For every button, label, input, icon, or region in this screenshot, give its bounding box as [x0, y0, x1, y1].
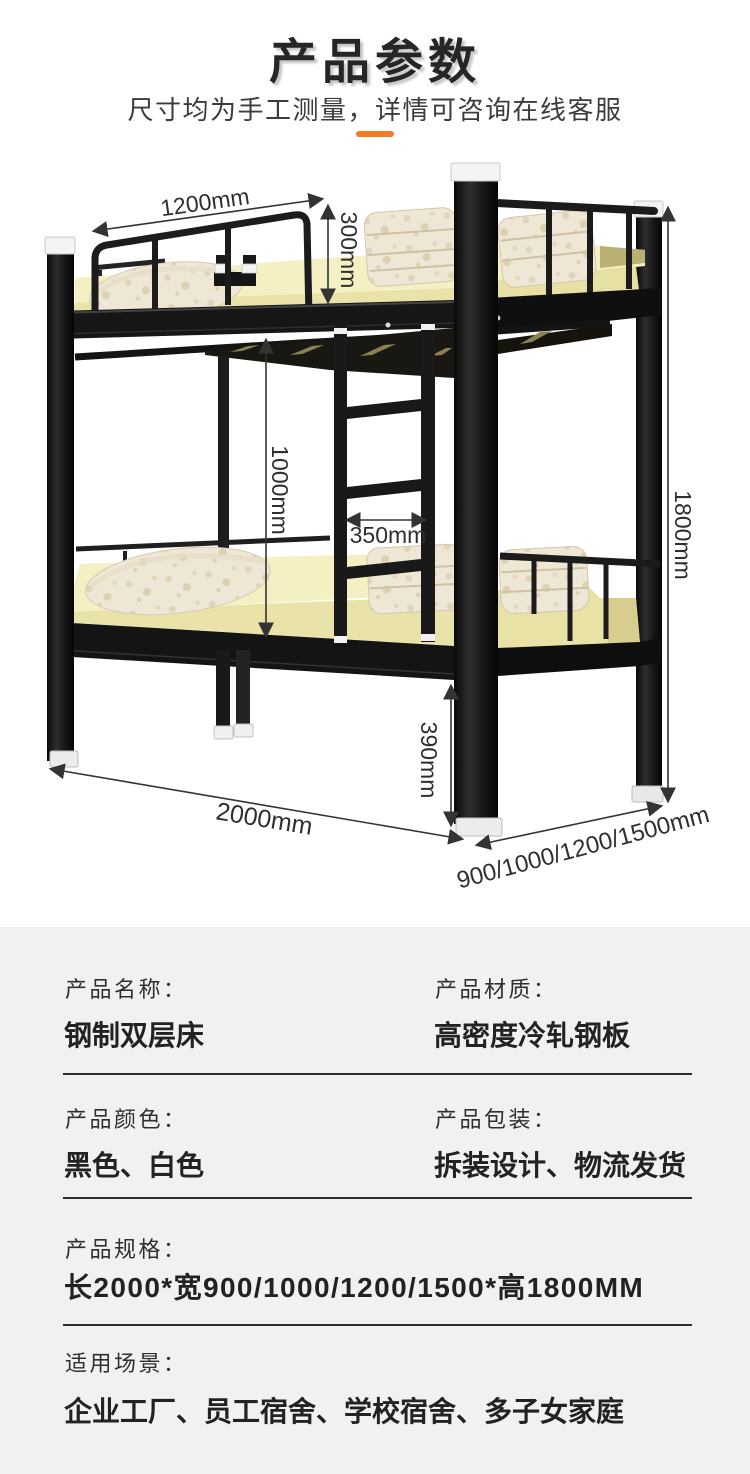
svg-text:2000mm: 2000mm: [214, 797, 315, 840]
svg-text:1800mm: 1800mm: [670, 490, 696, 579]
svg-text:350mm: 350mm: [350, 522, 427, 548]
svg-text:300mm: 300mm: [336, 212, 362, 289]
svg-text:390mm: 390mm: [416, 722, 442, 799]
svg-text:1000mm: 1000mm: [267, 445, 293, 534]
